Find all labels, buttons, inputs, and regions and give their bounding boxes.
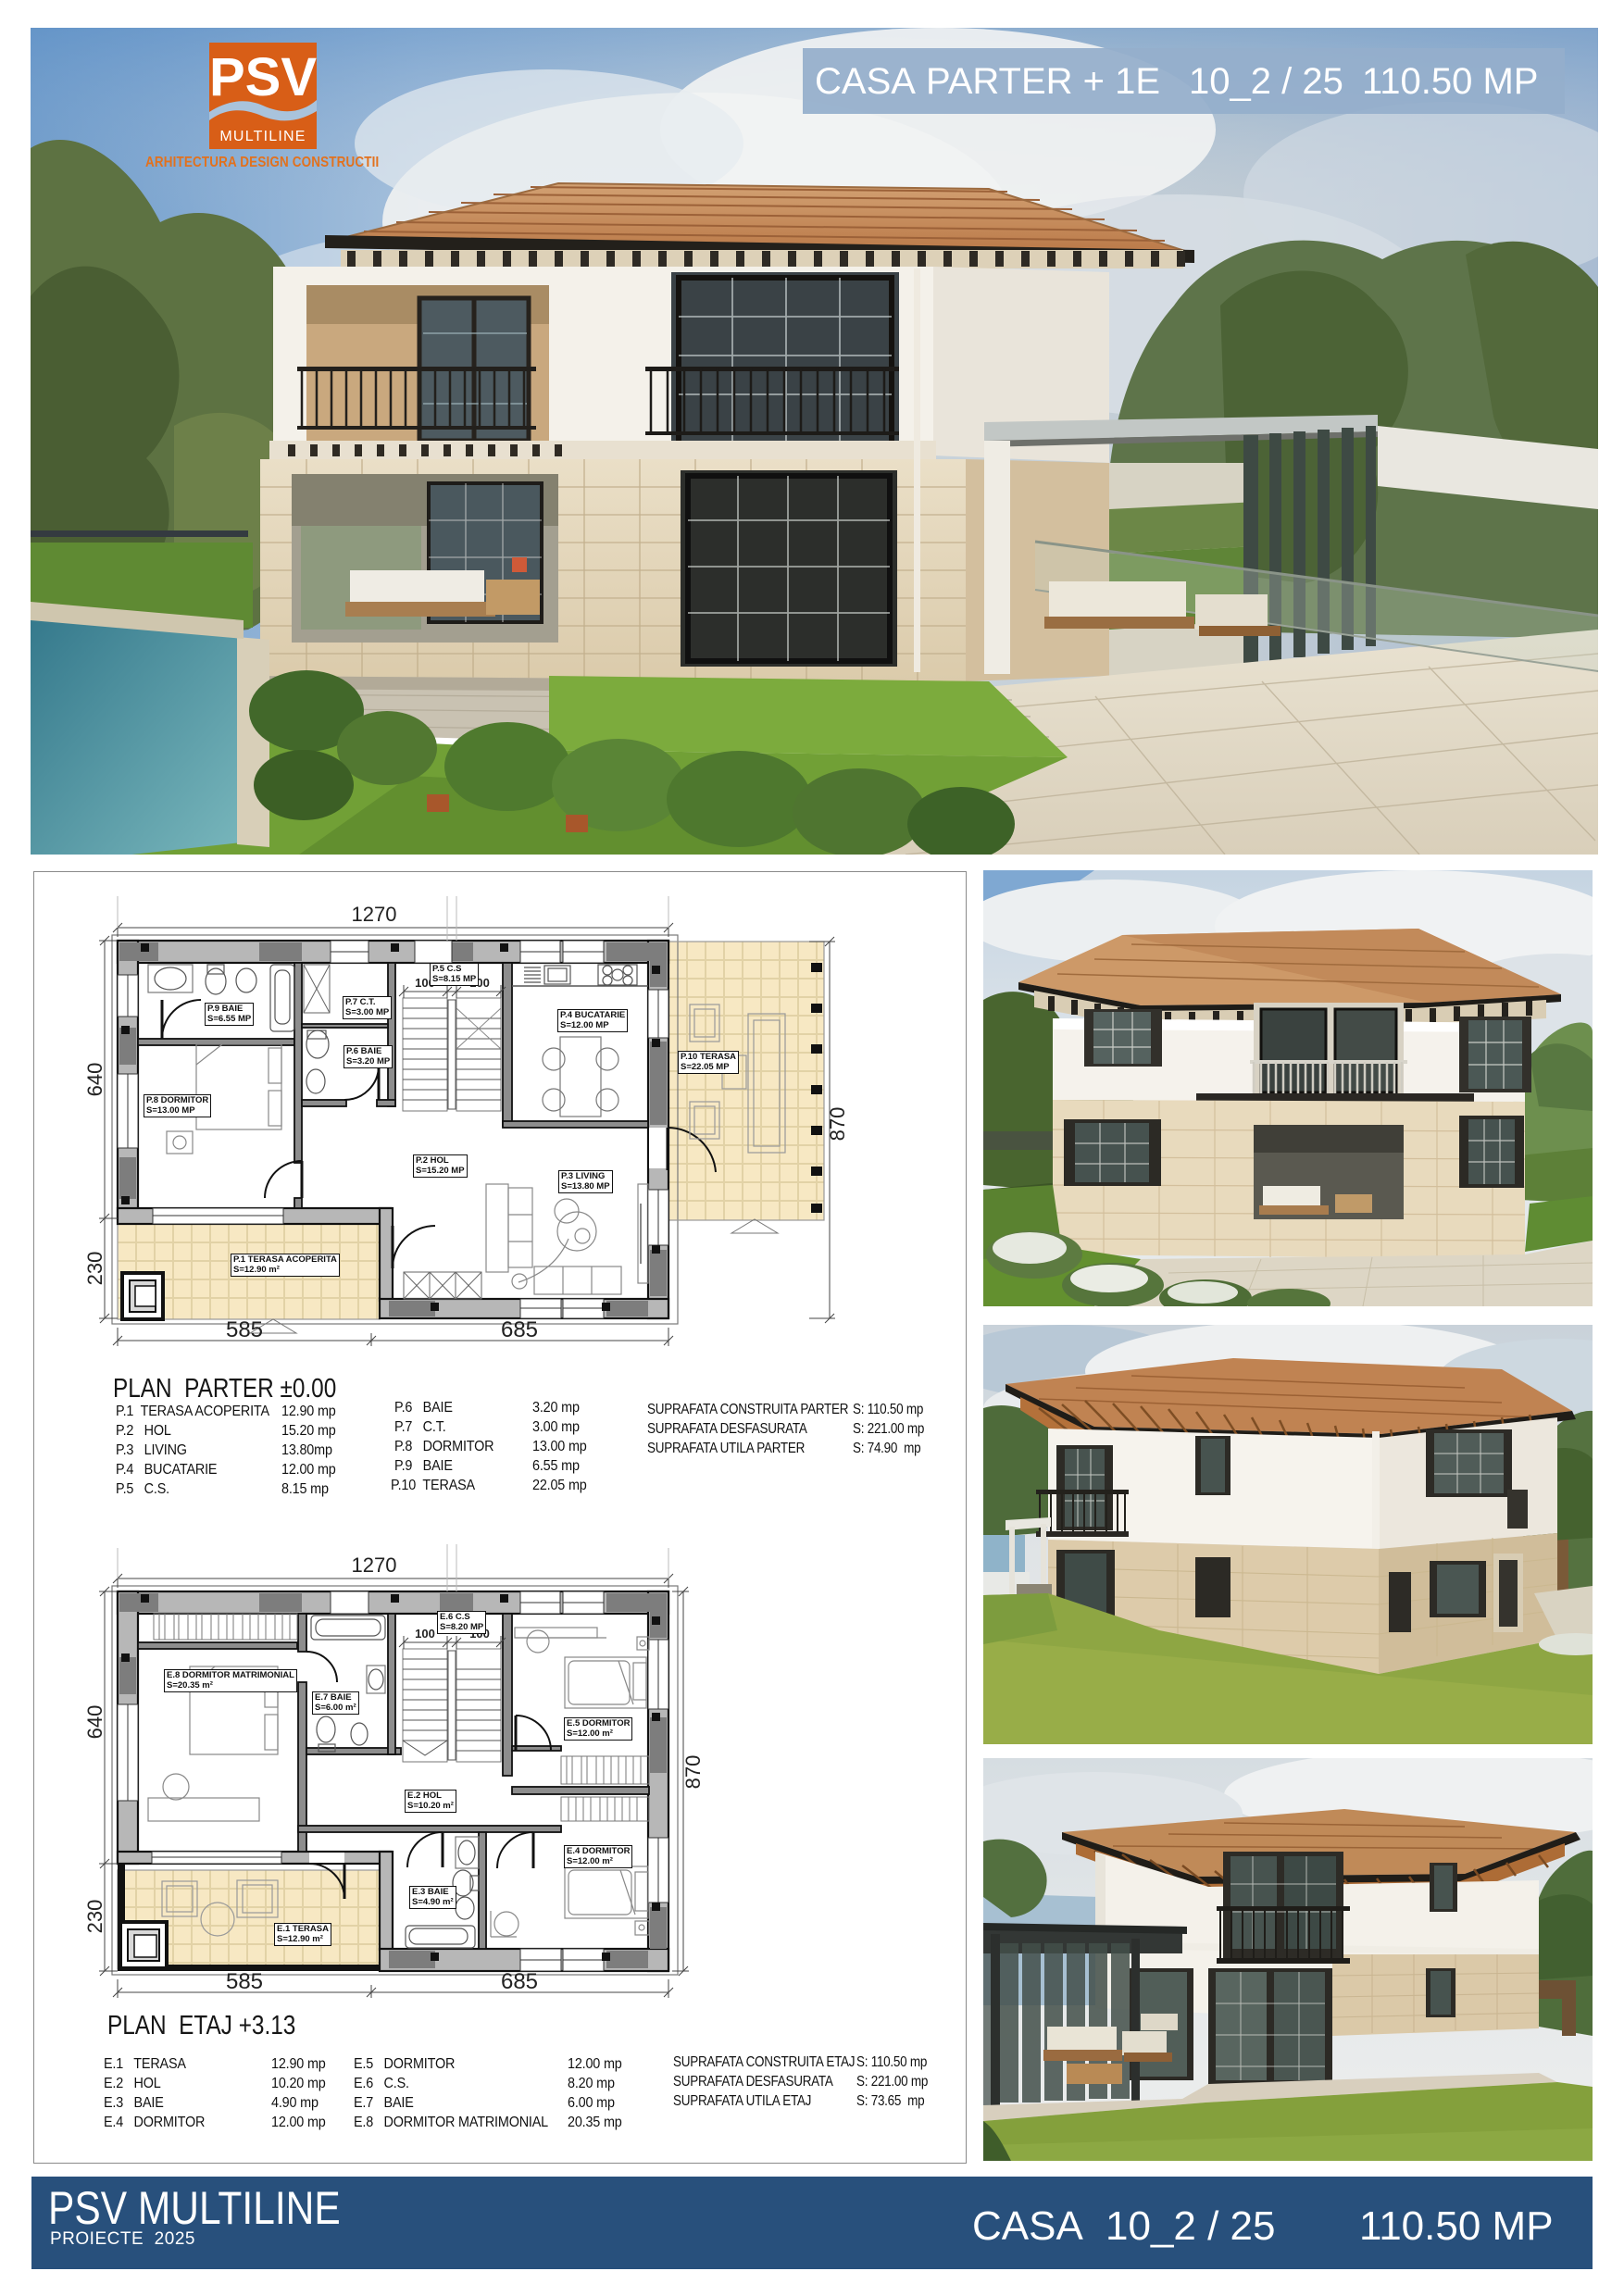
svg-text:640: 640 — [83, 1705, 106, 1740]
svg-text:230: 230 — [83, 1900, 106, 1934]
svg-text:685: 685 — [501, 1317, 538, 1342]
svg-text:870: 870 — [681, 1755, 705, 1790]
svg-text:870: 870 — [826, 1107, 849, 1142]
svg-text:1270: 1270 — [352, 903, 397, 926]
svg-text:PSV: PSV — [209, 47, 317, 107]
svg-text:685: 685 — [501, 1969, 538, 1994]
svg-text:100: 100 — [415, 1627, 435, 1641]
svg-text:1270: 1270 — [352, 1554, 397, 1577]
svg-text:585: 585 — [226, 1969, 263, 1994]
svg-text:585: 585 — [226, 1317, 263, 1342]
svg-text:230: 230 — [83, 1252, 106, 1286]
svg-text:640: 640 — [83, 1063, 106, 1097]
svg-text:MULTILINE: MULTILINE — [219, 129, 306, 144]
